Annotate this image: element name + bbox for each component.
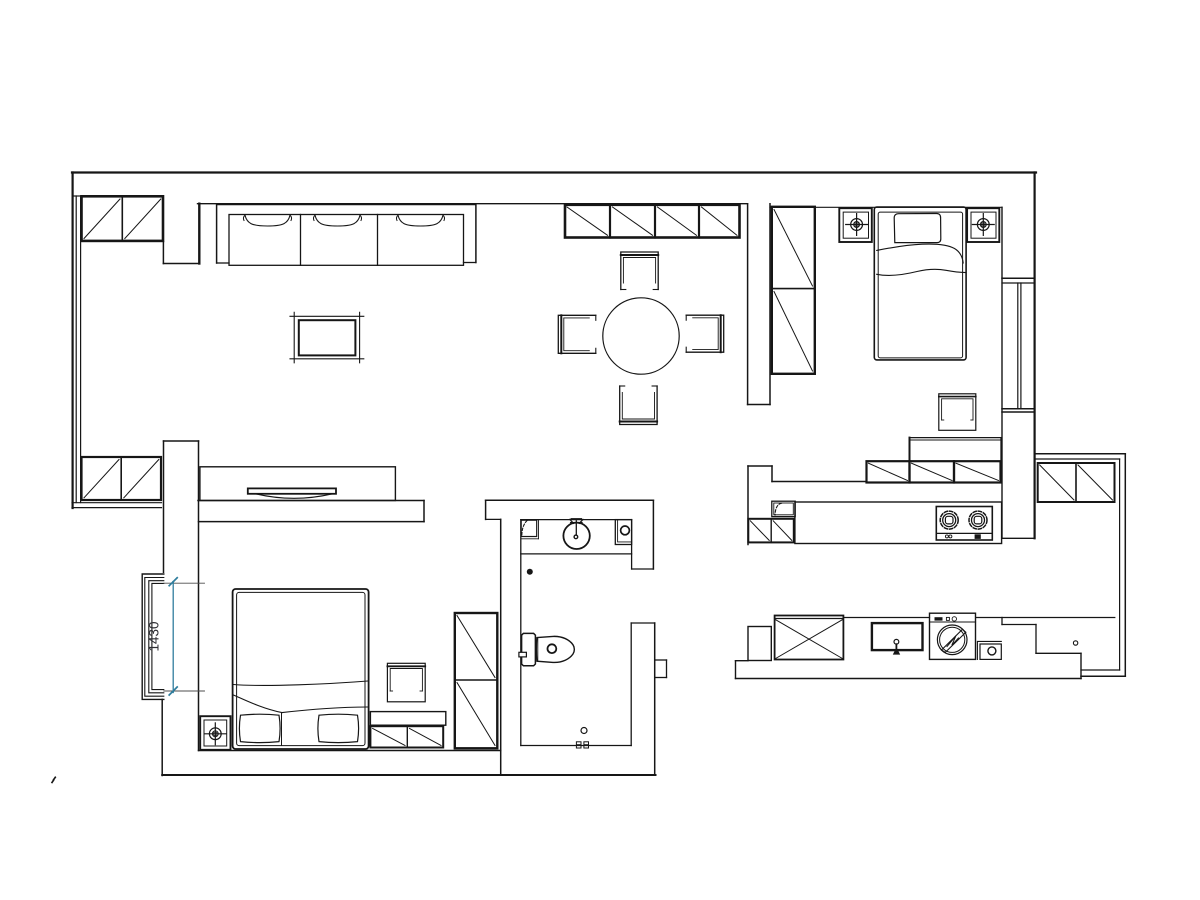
svg-text:1430: 1430 xyxy=(147,621,162,651)
